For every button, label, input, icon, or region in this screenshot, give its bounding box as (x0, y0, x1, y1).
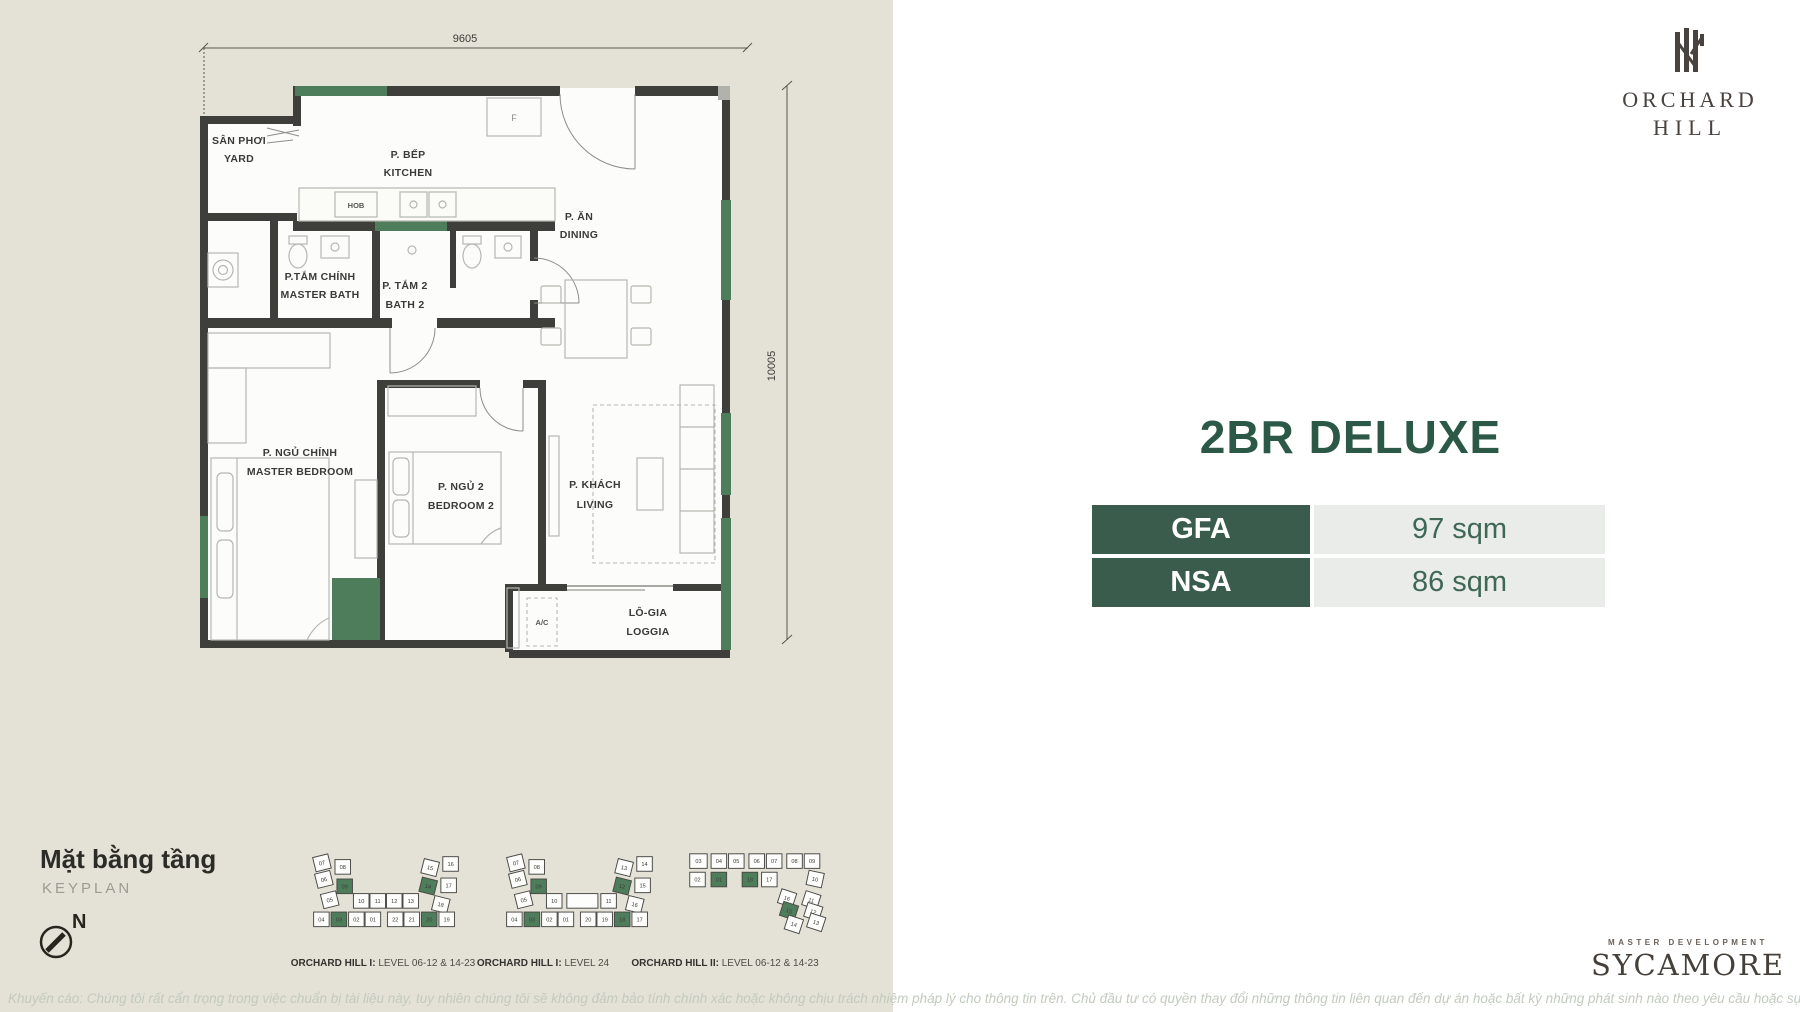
keyplan-unit-number: 12 (391, 899, 397, 905)
spec-table: GFA 97 sqm NSA 86 sqm (1092, 505, 1605, 611)
keyplan-unit-number: 01 (716, 878, 722, 884)
keyplan-unit-number: 10 (811, 877, 818, 884)
label-master-bed-vi: P. NGỦ CHÍNH (263, 446, 338, 459)
keyplan-unit-number: 02 (546, 917, 552, 923)
keyplan-unit-number: 20 (585, 917, 591, 923)
label-dining-vi: P. ĂN (565, 210, 593, 223)
keyplan-unit-number: 17 (446, 883, 452, 889)
keyplan-unit-number: 10 (551, 899, 557, 905)
orchard-hill-logo: ORCHARD HILL (1615, 28, 1765, 141)
keyplan-unit-number: 15 (639, 883, 645, 889)
label-master-bed-en: MASTER BEDROOM (247, 466, 353, 478)
keyplan-unit-number: 17 (766, 878, 772, 884)
keyplan-unit-number: 01 (563, 917, 569, 923)
apartment-floor (204, 88, 726, 658)
label-living-en: LIVING (577, 499, 614, 511)
keyplan-unit-number: 14 (641, 862, 647, 868)
keyplan-building-1: 0708060905151614171810111213040302012221… (293, 846, 478, 948)
spec-row-nsa: NSA 86 sqm (1092, 558, 1605, 607)
keyplan-caption-3: ORCHARD HILL II: LEVEL 06-12 & 14-23 (625, 958, 825, 969)
keyplan-title-en: KEYPLAN (42, 880, 132, 897)
gfa-label: GFA (1092, 505, 1310, 554)
label-bed2-en: BEDROOM 2 (428, 500, 494, 512)
label-fridge: F (511, 113, 517, 123)
keyplan-unit-number: 19 (602, 917, 608, 923)
floor-plan: 9605 10005 (175, 28, 795, 728)
compass-icon: N (36, 912, 92, 962)
label-dining-en: DINING (560, 229, 599, 241)
keyplan-unit-number: 02 (694, 878, 700, 884)
keyplan-unit-number: 07 (771, 859, 777, 865)
keyplan-unit-number: 03 (336, 917, 342, 923)
keyplan-unit-number: 08 (534, 865, 540, 871)
keyplan-unit-number: 18 (747, 878, 753, 884)
label-master-bath-vi: P.TẮM CHÍNH (285, 270, 356, 283)
disclaimer-text: Khuyến cáo: Chúng tôi rất cẩn trọng tron… (8, 991, 1800, 1006)
keyplan-unit-number: 19 (444, 917, 450, 923)
keyplan-unit-number: 09 (536, 884, 542, 890)
keyplan-unit-number: 05 (733, 859, 739, 865)
label-loggia-vi: LÔ-GIA (629, 606, 668, 619)
keyplan-unit-number: 03 (695, 859, 701, 865)
keyplan-unit-number: 20 (426, 917, 432, 923)
gfa-value: 97 sqm (1314, 505, 1605, 554)
tree-icon (1669, 28, 1711, 76)
keyplan-unit-number: 09 (342, 884, 348, 890)
logo-line1: ORCHARD (1615, 87, 1765, 113)
keyplan-unit-number: 21 (409, 917, 415, 923)
spec-row-gfa: GFA 97 sqm (1092, 505, 1605, 554)
wall-cap (718, 86, 730, 100)
keyplan-building-2: 0708060905131412151610110403020120191817 (486, 846, 671, 948)
keyplan-unit-number: 09 (809, 859, 815, 865)
keyplan-unit-number: 18 (619, 917, 625, 923)
keyplan-unit-number: 22 (392, 917, 398, 923)
label-ac: A/C (536, 618, 550, 627)
logo-line2: HILL (1615, 115, 1765, 141)
sycamore-logo: SYCAMORE (1588, 948, 1788, 982)
label-loggia-en: LOGGIA (626, 626, 669, 638)
compass-north-label: N (72, 912, 86, 933)
label-bath2-en: BATH 2 (386, 299, 425, 311)
dim-height-label: 10005 (766, 351, 778, 382)
keyplan-unit-number: 02 (353, 917, 359, 923)
dim-width-label: 9605 (453, 33, 477, 45)
nsa-value: 86 sqm (1314, 558, 1605, 607)
keyplan-unit-number: 04 (511, 917, 517, 923)
keyplan-unit-number: 04 (318, 917, 324, 923)
label-master-bath-en: MASTER BATH (281, 289, 360, 301)
nsa-label: NSA (1092, 558, 1310, 607)
label-kitchen-vi: P. BẾP (391, 148, 426, 161)
keyplan-unit-number: 06 (754, 859, 760, 865)
keyplan-unit-number: 11 (375, 899, 381, 905)
keyplan-unit-number: 08 (791, 859, 797, 865)
keyplan-unit (567, 894, 598, 909)
label-living-vi: P. KHÁCH (569, 478, 621, 491)
keyplan-unit-number: 04 (716, 859, 722, 865)
label-yard-vi: SÂN PHƠI (212, 134, 266, 147)
label-yard-en: YARD (224, 153, 254, 165)
keyplan-unit-number: 17 (637, 917, 643, 923)
keyplan-title-vi: Mặt bằng tầng (40, 844, 216, 875)
keyplan-unit-number: 16 (447, 862, 453, 868)
master-development-label: MASTER DEVELOPMENT (1588, 938, 1788, 947)
brochure-page: 9605 10005 (0, 0, 1800, 1012)
keyplan-unit-number: 13 (408, 899, 414, 905)
keyplan-building-3: 030405060708090201181710161115121413 (681, 846, 846, 948)
unit-type-title: 2BR DELUXE (1093, 410, 1608, 464)
keyplan-unit-number: 11 (606, 899, 612, 905)
label-bed2-vi: P. NGỦ 2 (438, 480, 484, 493)
label-kitchen-en: KITCHEN (384, 167, 433, 179)
keyplan-unit-number: 01 (370, 917, 376, 923)
master-development-block: MASTER DEVELOPMENT SYCAMORE (1588, 938, 1788, 982)
keyplan-unit-number: 08 (340, 865, 346, 871)
keyplan-caption-2: ORCHARD HILL I: LEVEL 24 (443, 958, 643, 969)
keyplan-unit-number: 03 (529, 917, 535, 923)
label-hob: HOB (348, 201, 365, 210)
label-bath2-vi: P. TẮM 2 (382, 279, 427, 292)
keyplan-unit-number: 10 (358, 899, 364, 905)
